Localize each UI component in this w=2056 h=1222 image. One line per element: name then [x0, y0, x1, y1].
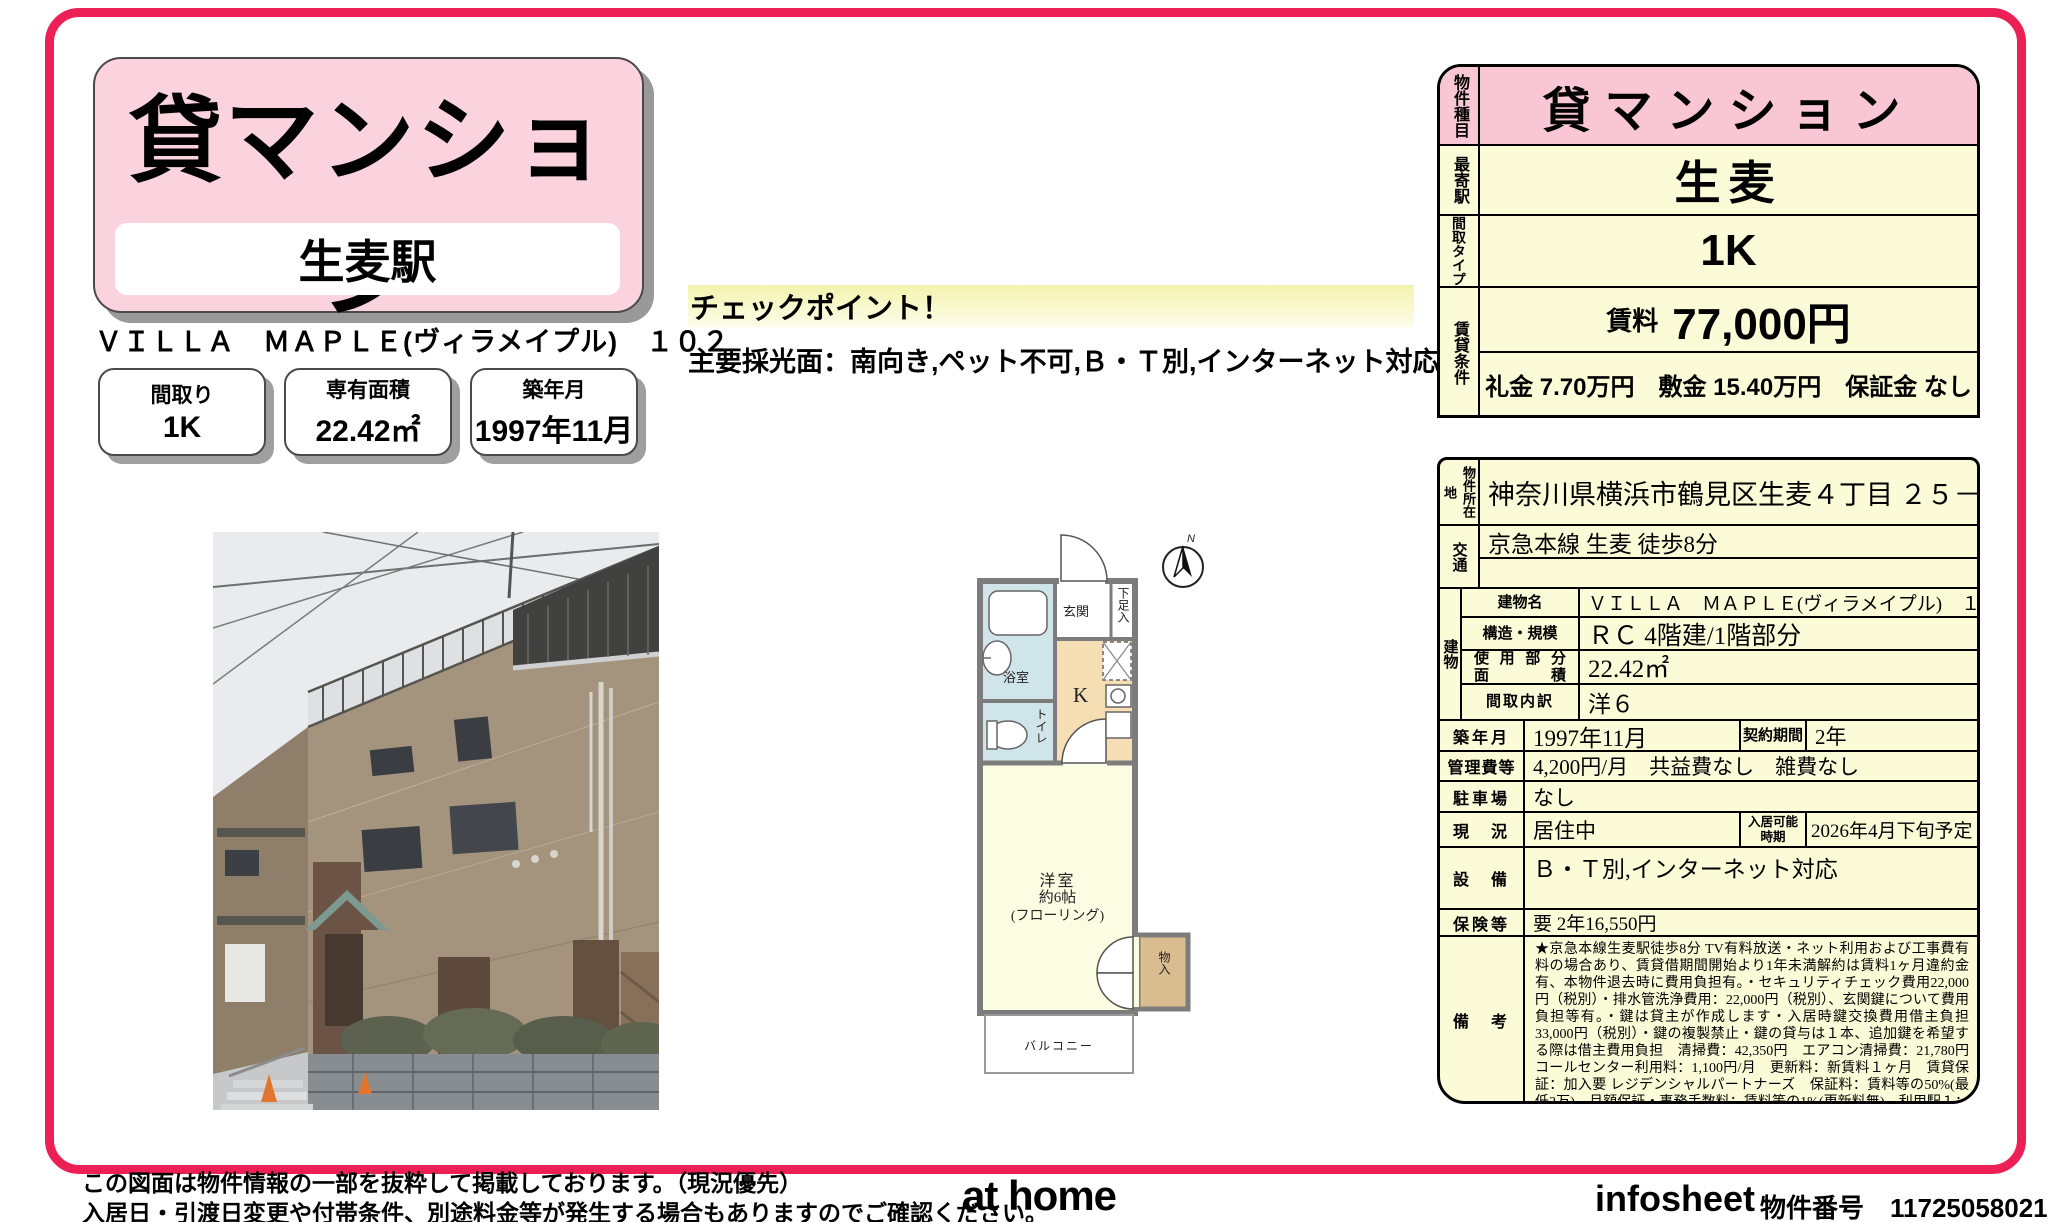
value-property-type: 貸マンション [1542, 71, 1914, 141]
label-building: 建物 [1440, 589, 1462, 719]
station-banner: 生麦駅 [115, 223, 620, 295]
spec-box-built: 築年月 1997年11月 [470, 368, 638, 456]
value-station: 生麦 [1675, 147, 1783, 213]
athome-logo: at home [962, 1172, 1116, 1220]
value-location: 神奈川県横浜市鶴見区生麦４丁目 ２５－１７ [1480, 460, 1977, 524]
spec-box-area: 専有面積 22.42㎡ [284, 368, 452, 456]
floorplan-drawing [975, 515, 1225, 1085]
value-remarks: ★京急本線生麦駅徒歩8分 TV有料放送・ネット利用および工事費有料の場合あり、賃… [1525, 937, 1977, 1102]
room-label-flooring: (フローリング) [982, 905, 1133, 925]
row-remarks: 備 考 ★京急本線生麦駅徒歩8分 TV有料放送・ネット利用および工事費有料の場合… [1440, 937, 1977, 1102]
spec-value: 1K [163, 411, 201, 445]
label-station: 最寄駅 [1440, 146, 1480, 214]
label-built: 築年月 [1440, 721, 1525, 750]
infosheet-label: infosheet [1595, 1178, 1755, 1220]
spec-value: 1997年11月 [475, 406, 633, 450]
value-equipment: Ｂ・Ｔ別,インターネット対応 [1525, 848, 1977, 908]
spec-label: 築年月 [523, 374, 586, 404]
row-building: 建物 建物名 ＶＩＬＬＡ ＭＡＰＬＥ(ヴィラメイプル) １０２ 構造・規模 ＲＣ… [1440, 589, 1977, 721]
value-built: 1997年11月 [1525, 721, 1739, 750]
summary-table: 物件種目 貸マンション 最寄駅 生麦 間取タイプ 1K 賃貸条件 賃料 77,0… [1437, 64, 1980, 418]
label-insurance: 保険等 [1440, 910, 1525, 935]
building-title: ＶＩＬＬＡ ＭＡＰＬＥ(ヴィラメイプル) １０２ [95, 320, 643, 359]
room-label-size: 約6帖 [982, 886, 1133, 907]
room-label-toilet: トイレ [1033, 708, 1050, 760]
fees-line: 礼金 7.70万円 敷金 15.40万円 保証金 なし [1480, 351, 1977, 415]
label-location: 物件所在地 [1440, 460, 1480, 524]
label-building-name: 建物名 [1462, 589, 1580, 616]
label-equipment: 設 備 [1440, 848, 1525, 908]
label-mgmt: 管理費等 [1440, 752, 1525, 780]
label-status: 現 況 [1440, 813, 1525, 846]
row-access: 交通 京急本線 生麦 徒歩8分 [1440, 526, 1977, 589]
property-number: 物件番号 11725058021 [1760, 1188, 2048, 1222]
rent-value: 77,000円 [1672, 288, 1851, 352]
row-parking: 駐車場 なし [1440, 782, 1977, 813]
spec-label: 間取り [151, 379, 214, 409]
checkpoint-text: 主要採光面：南向き,ペット不可,Ｂ・Ｔ別,インターネット対応 [688, 340, 1440, 379]
label-area: 使用部分 面積 [1462, 651, 1580, 683]
value-structure: ＲＣ 4階建/1階部分 [1580, 618, 1980, 649]
value-status: 居住中 [1525, 813, 1739, 846]
label-remarks: 備 考 [1440, 937, 1525, 1102]
room-label-kitchen: K [1073, 683, 1088, 708]
value-access-2 [1480, 559, 1977, 587]
building-photo [213, 532, 659, 1110]
spec-boxes: 間取り 1K 専有面積 22.42㎡ 築年月 1997年11月 [98, 368, 638, 456]
value-layout-type: 1K [1700, 226, 1756, 276]
room-label-balcony: バルコニー [985, 1037, 1133, 1054]
label-parking: 駐車場 [1440, 782, 1525, 811]
value-mgmt: 4,200円/月 共益費なし 雑費なし [1525, 752, 1977, 780]
room-label-bath: 浴室 [1003, 667, 1029, 686]
property-type-title: 貸マンション [95, 65, 642, 337]
floorplan: 玄関 下足入 浴室 トイレ K 洋室 約6帖 (フローリング) 物入 バルコニー… [975, 515, 1225, 1085]
value-access: 京急本線 生麦 徒歩8分 [1480, 526, 1977, 557]
spec-value: 22.42㎡ [315, 406, 420, 450]
label-layout-detail: 間取内訳 [1462, 685, 1580, 719]
building-photo-art [213, 532, 659, 1110]
value-insurance: 要 2年16,550円 [1525, 910, 1977, 935]
value-area: 22.42㎡ [1580, 651, 1980, 683]
row-location: 物件所在地 神奈川県横浜市鶴見区生麦４丁目 ２５－１７ [1440, 460, 1977, 526]
row-built: 築年月 1997年11月 契約期間 2年 [1440, 721, 1977, 752]
checkpoint-title: チェックポイント！ [688, 285, 951, 327]
label-contract: 契約期間 [1739, 721, 1807, 750]
row-rent-terms: 賃貸条件 賃料 77,000円 礼金 7.70万円 敷金 15.40万円 保証金… [1440, 288, 1977, 417]
row-mgmt-fees: 管理費等 4,200円/月 共益費なし 雑費なし [1440, 752, 1977, 782]
row-property-type: 物件種目 貸マンション [1440, 67, 1977, 146]
infosheet-page: 貸マンション 生麦駅 ＶＩＬＬＡ ＭＡＰＬＥ(ヴィラメイプル) １０２ 間取り … [0, 0, 2056, 1222]
room-label-closet: 物入 [1156, 951, 1173, 995]
spec-label: 専有面積 [326, 374, 410, 404]
spec-box-layout: 間取り 1K [98, 368, 266, 456]
label-property-type: 物件種目 [1440, 67, 1480, 144]
checkpoint-band: チェックポイント！ [688, 285, 1414, 327]
label-layout-type: 間取タイプ [1440, 216, 1480, 286]
row-status: 現 況 居住中 入居可能 時期 2026年4月下旬予定 [1440, 813, 1977, 848]
row-station: 最寄駅 生麦 [1440, 146, 1977, 216]
property-number-value: 11725058021 [1890, 1193, 2048, 1222]
row-insurance: 保険等 要 2年16,550円 [1440, 910, 1977, 937]
row-layout-type: 間取タイプ 1K [1440, 216, 1977, 288]
value-parking: なし [1525, 782, 1977, 811]
label-structure: 構造・規模 [1462, 618, 1580, 649]
row-equipment: 設 備 Ｂ・Ｔ別,インターネット対応 [1440, 848, 1977, 910]
room-label-shoebox: 下足入 [1115, 587, 1132, 637]
compass-n-label: N [1187, 533, 1195, 545]
rent-line: 賃料 77,000円 [1480, 288, 1977, 351]
detail-table: 物件所在地 神奈川県横浜市鶴見区生麦４丁目 ２５－１７ 交通 京急本線 生麦 徒… [1437, 457, 1980, 1104]
rent-label: 賃料 [1606, 301, 1658, 338]
property-type-banner: 貸マンション 生麦駅 [93, 57, 644, 313]
label-movein: 入居可能 時期 [1739, 813, 1807, 846]
room-label-genkan: 玄関 [1063, 601, 1089, 620]
value-movein: 2026年4月下旬予定 [1807, 813, 1977, 846]
property-number-label: 物件番号 [1760, 1188, 1864, 1222]
value-layout-detail: 洋６ [1580, 685, 1980, 719]
value-building-name: ＶＩＬＬＡ ＭＡＰＬＥ(ヴィラメイプル) １０２ [1580, 589, 1980, 616]
value-contract: 2年 [1807, 721, 1977, 750]
footer-disclaimer-2: 入居日・引渡日変更や付帯条件、別途料金等が発生する場合もありますのでご確認くださ… [82, 1194, 1048, 1222]
footer-disclaimer-1: この図面は物件情報の一部を抜粋して掲載しております。（現況優先） [82, 1164, 802, 1198]
label-rent-terms: 賃貸条件 [1440, 288, 1480, 417]
label-access: 交通 [1440, 526, 1480, 587]
